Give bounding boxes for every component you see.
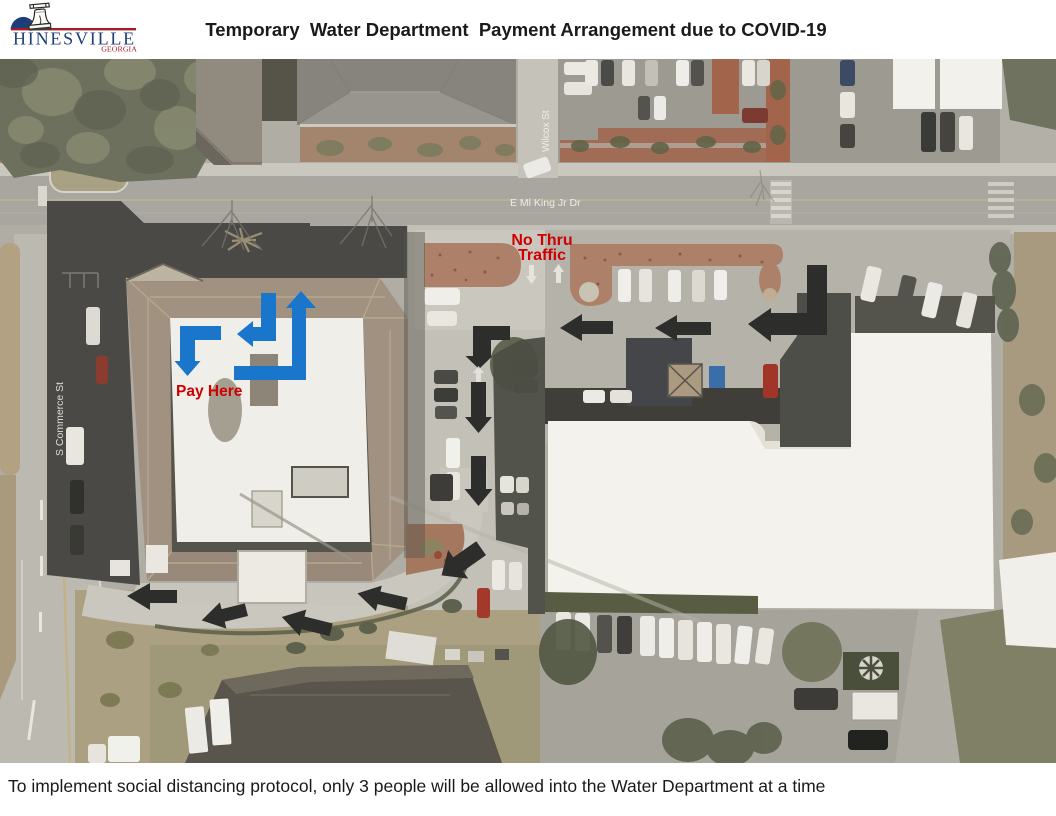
svg-text:S Commerce St: S Commerce St <box>54 382 66 456</box>
svg-text:Pay Here: Pay Here <box>176 383 243 400</box>
svg-text:GEORGIA: GEORGIA <box>101 45 137 54</box>
svg-text:E Ml King Jr Dr: E Ml King Jr Dr <box>510 197 581 209</box>
svg-text:Temporary Water Department P: Temporary Water Department Payment Arran… <box>205 19 826 40</box>
svg-text:To implement social distancing: To implement social distancing protocol,… <box>8 776 825 796</box>
svg-text:Wilcox St: Wilcox St <box>541 110 552 152</box>
svg-text:Traffic: Traffic <box>518 247 566 264</box>
